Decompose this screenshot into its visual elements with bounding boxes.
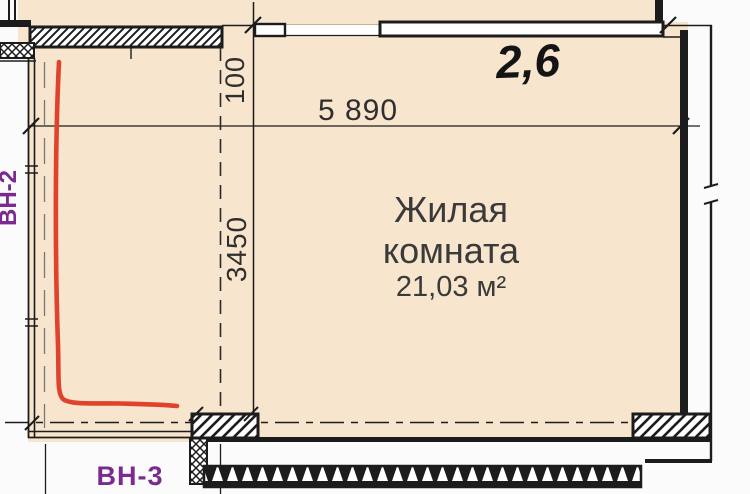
window-top-small (255, 24, 285, 36)
wall-stub-top-right (655, 0, 663, 22)
window-niche-strip (283, 25, 380, 36)
handwritten-note: 2,6 (477, 32, 579, 89)
room-name-line1: Жилая (331, 189, 571, 231)
dimension-gap-label: 100 (220, 45, 248, 115)
corner-wall-bar (0, 20, 31, 27)
dimension-width-label: 5 890 (278, 94, 438, 128)
dimension-depth-label: 3450 (221, 204, 249, 294)
room-area-label: 21,03 м² (331, 271, 571, 304)
unit-label-bottom: ВН-3 (88, 461, 172, 492)
unit-label-left: ВН-2 (0, 153, 21, 243)
corner-diamond-band (0, 43, 34, 58)
right-wall (680, 30, 688, 438)
outer-wall-bottom-return (645, 459, 712, 463)
outside-left (0, 58, 28, 442)
pier-right-hatched (633, 414, 710, 438)
room-name-line2: комната (331, 230, 571, 272)
top-wall-hatched (30, 27, 222, 47)
insulation-band (204, 466, 641, 487)
floor-plan: 5 890 100 3450 Жилая комната 21,03 м² 2,… (0, 0, 750, 494)
